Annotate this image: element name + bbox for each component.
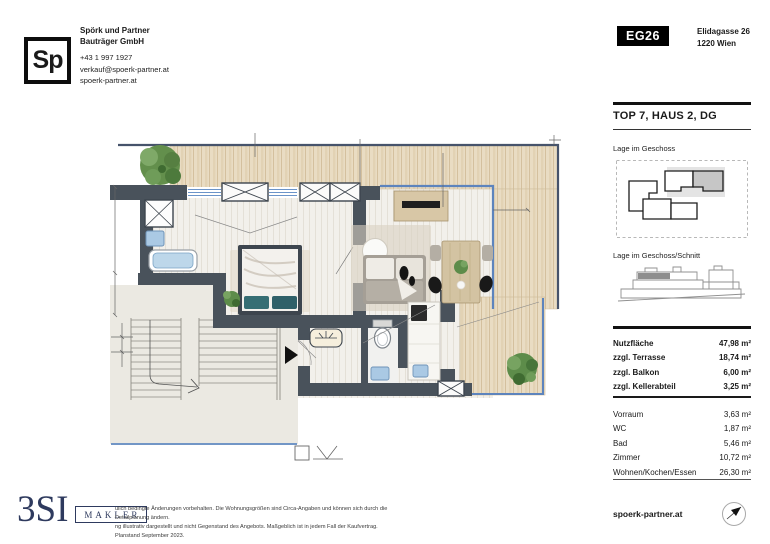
bed-pillow [244, 296, 269, 309]
room-value: 5,46 m² [724, 439, 751, 448]
elevator-box [295, 446, 309, 460]
decor-vase [409, 276, 415, 286]
company-logo: Sp [24, 37, 71, 84]
tv-sideboard [394, 191, 448, 221]
area-table: Nutzfläche47,98 m² zzgl. Terrasse18,74 m… [613, 336, 751, 394]
location-mini-map [615, 159, 749, 239]
company-name-line1: Spörk und Partner [80, 26, 150, 37]
door-swing-symbol [313, 446, 343, 459]
location-label: Lage im Geschoss [613, 144, 751, 153]
unit-title: TOP 7, HAUS 2, DG [613, 110, 751, 122]
sidebar-divider-top [613, 102, 751, 105]
washbasin [146, 231, 164, 246]
address-line2: 1220 Wien [697, 38, 750, 50]
area-table-divider [613, 326, 751, 329]
room-value: 26,30 m² [719, 468, 751, 477]
company-name: Spörk und Partner Bauträger GmbH [80, 26, 150, 47]
project-address: Elidagasse 26 1220 Wien [697, 26, 750, 50]
company-name-line2: Bauträger GmbH [80, 37, 150, 48]
area-value: 47,98 m² [719, 339, 751, 348]
section-highlight-level [638, 273, 670, 279]
project-badge: EG26 [617, 26, 669, 46]
area-value: 3,25 m² [723, 382, 751, 391]
contact-email: verkauf@spoerk-partner.at [80, 64, 169, 76]
wc-basin [371, 367, 389, 380]
wc [368, 320, 398, 383]
kitchen [408, 302, 440, 380]
room-label: WC [613, 424, 626, 433]
area-label: zzgl. Balkon [613, 368, 659, 377]
address-line1: Elidagasse 26 [697, 26, 750, 38]
room-row: Zimmer10,72 m² [613, 451, 751, 466]
area-label: zzgl. Kellerabteil [613, 382, 676, 391]
room-label: Bad [613, 439, 627, 448]
contact-phone: +43 1 997 1927 [80, 52, 169, 64]
area-value: 18,74 m² [719, 353, 751, 362]
area-row: zzgl. Balkon6,00 m² [613, 365, 751, 380]
room-row: WC1,87 m² [613, 422, 751, 437]
room-row: Bad5,46 m² [613, 436, 751, 451]
bed [238, 245, 302, 315]
room-label: Vorraum [613, 410, 643, 419]
section-mini-diagram [615, 265, 749, 311]
north-arrow-icon [720, 500, 748, 528]
sofa [363, 255, 426, 304]
area-label: zzgl. Terrasse [613, 353, 665, 362]
room-label: Wohnen/Kochen/Essen [613, 468, 696, 477]
section-label: Lage im Geschoss/Schnitt [613, 251, 751, 260]
toilet [375, 328, 391, 348]
area-label: Nutzfläche [613, 339, 653, 348]
room-row: Vorraum3,63 m² [613, 407, 751, 422]
company-logo-text: Sp [33, 46, 63, 75]
disclaimer-line2: ng illustrativ dargestellt und nicht Geg… [115, 523, 393, 541]
cooktop [411, 305, 427, 321]
room-value: 1,87 m² [724, 424, 751, 433]
kitchen-sink [413, 365, 428, 377]
room-label: Zimmer [613, 453, 640, 462]
bed-pillow [272, 296, 297, 309]
mini-map-unit [643, 199, 671, 219]
mini-map-unit [671, 203, 697, 219]
company-contact: +43 1 997 1927 verkauf@spoerk-partner.at… [80, 52, 169, 87]
area-value: 6,00 m² [723, 368, 751, 377]
dining-chair [482, 245, 493, 261]
area-row: Nutzfläche47,98 m² [613, 336, 751, 351]
disclaimer-line1: ulich bedingte Änderungen vorbehalten. D… [115, 505, 393, 523]
footer-website: spoerk-partner.at [613, 509, 682, 519]
tv [402, 201, 440, 208]
area-row: zzgl. Terrasse18,74 m² [613, 351, 751, 366]
room-value: 3,63 m² [724, 410, 751, 419]
plan-page: Sp Spörk und Partner Bauträger GmbH +43 … [0, 0, 770, 544]
room-table: Vorraum3,63 m² WC1,87 m² Bad5,46 m² Zimm… [613, 407, 751, 480]
title-underline [613, 129, 751, 130]
disclaimer-text: ulich bedingte Änderungen vorbehalten. D… [115, 505, 393, 541]
room-table-divider [613, 396, 751, 398]
floor-plan [105, 127, 605, 492]
area-row: zzgl. Kellerabteil3,25 m² [613, 380, 751, 395]
brand-3si: 3SI [17, 492, 68, 528]
room-value: 10,72 m² [719, 453, 751, 462]
dining-chair [430, 245, 441, 261]
sidebar-divider-bottom [613, 479, 751, 480]
decor-vase [400, 266, 409, 280]
room-row: Wohnen/Kochen/Essen26,30 m² [613, 465, 751, 480]
contact-website: spoerk-partner.at [80, 75, 169, 87]
